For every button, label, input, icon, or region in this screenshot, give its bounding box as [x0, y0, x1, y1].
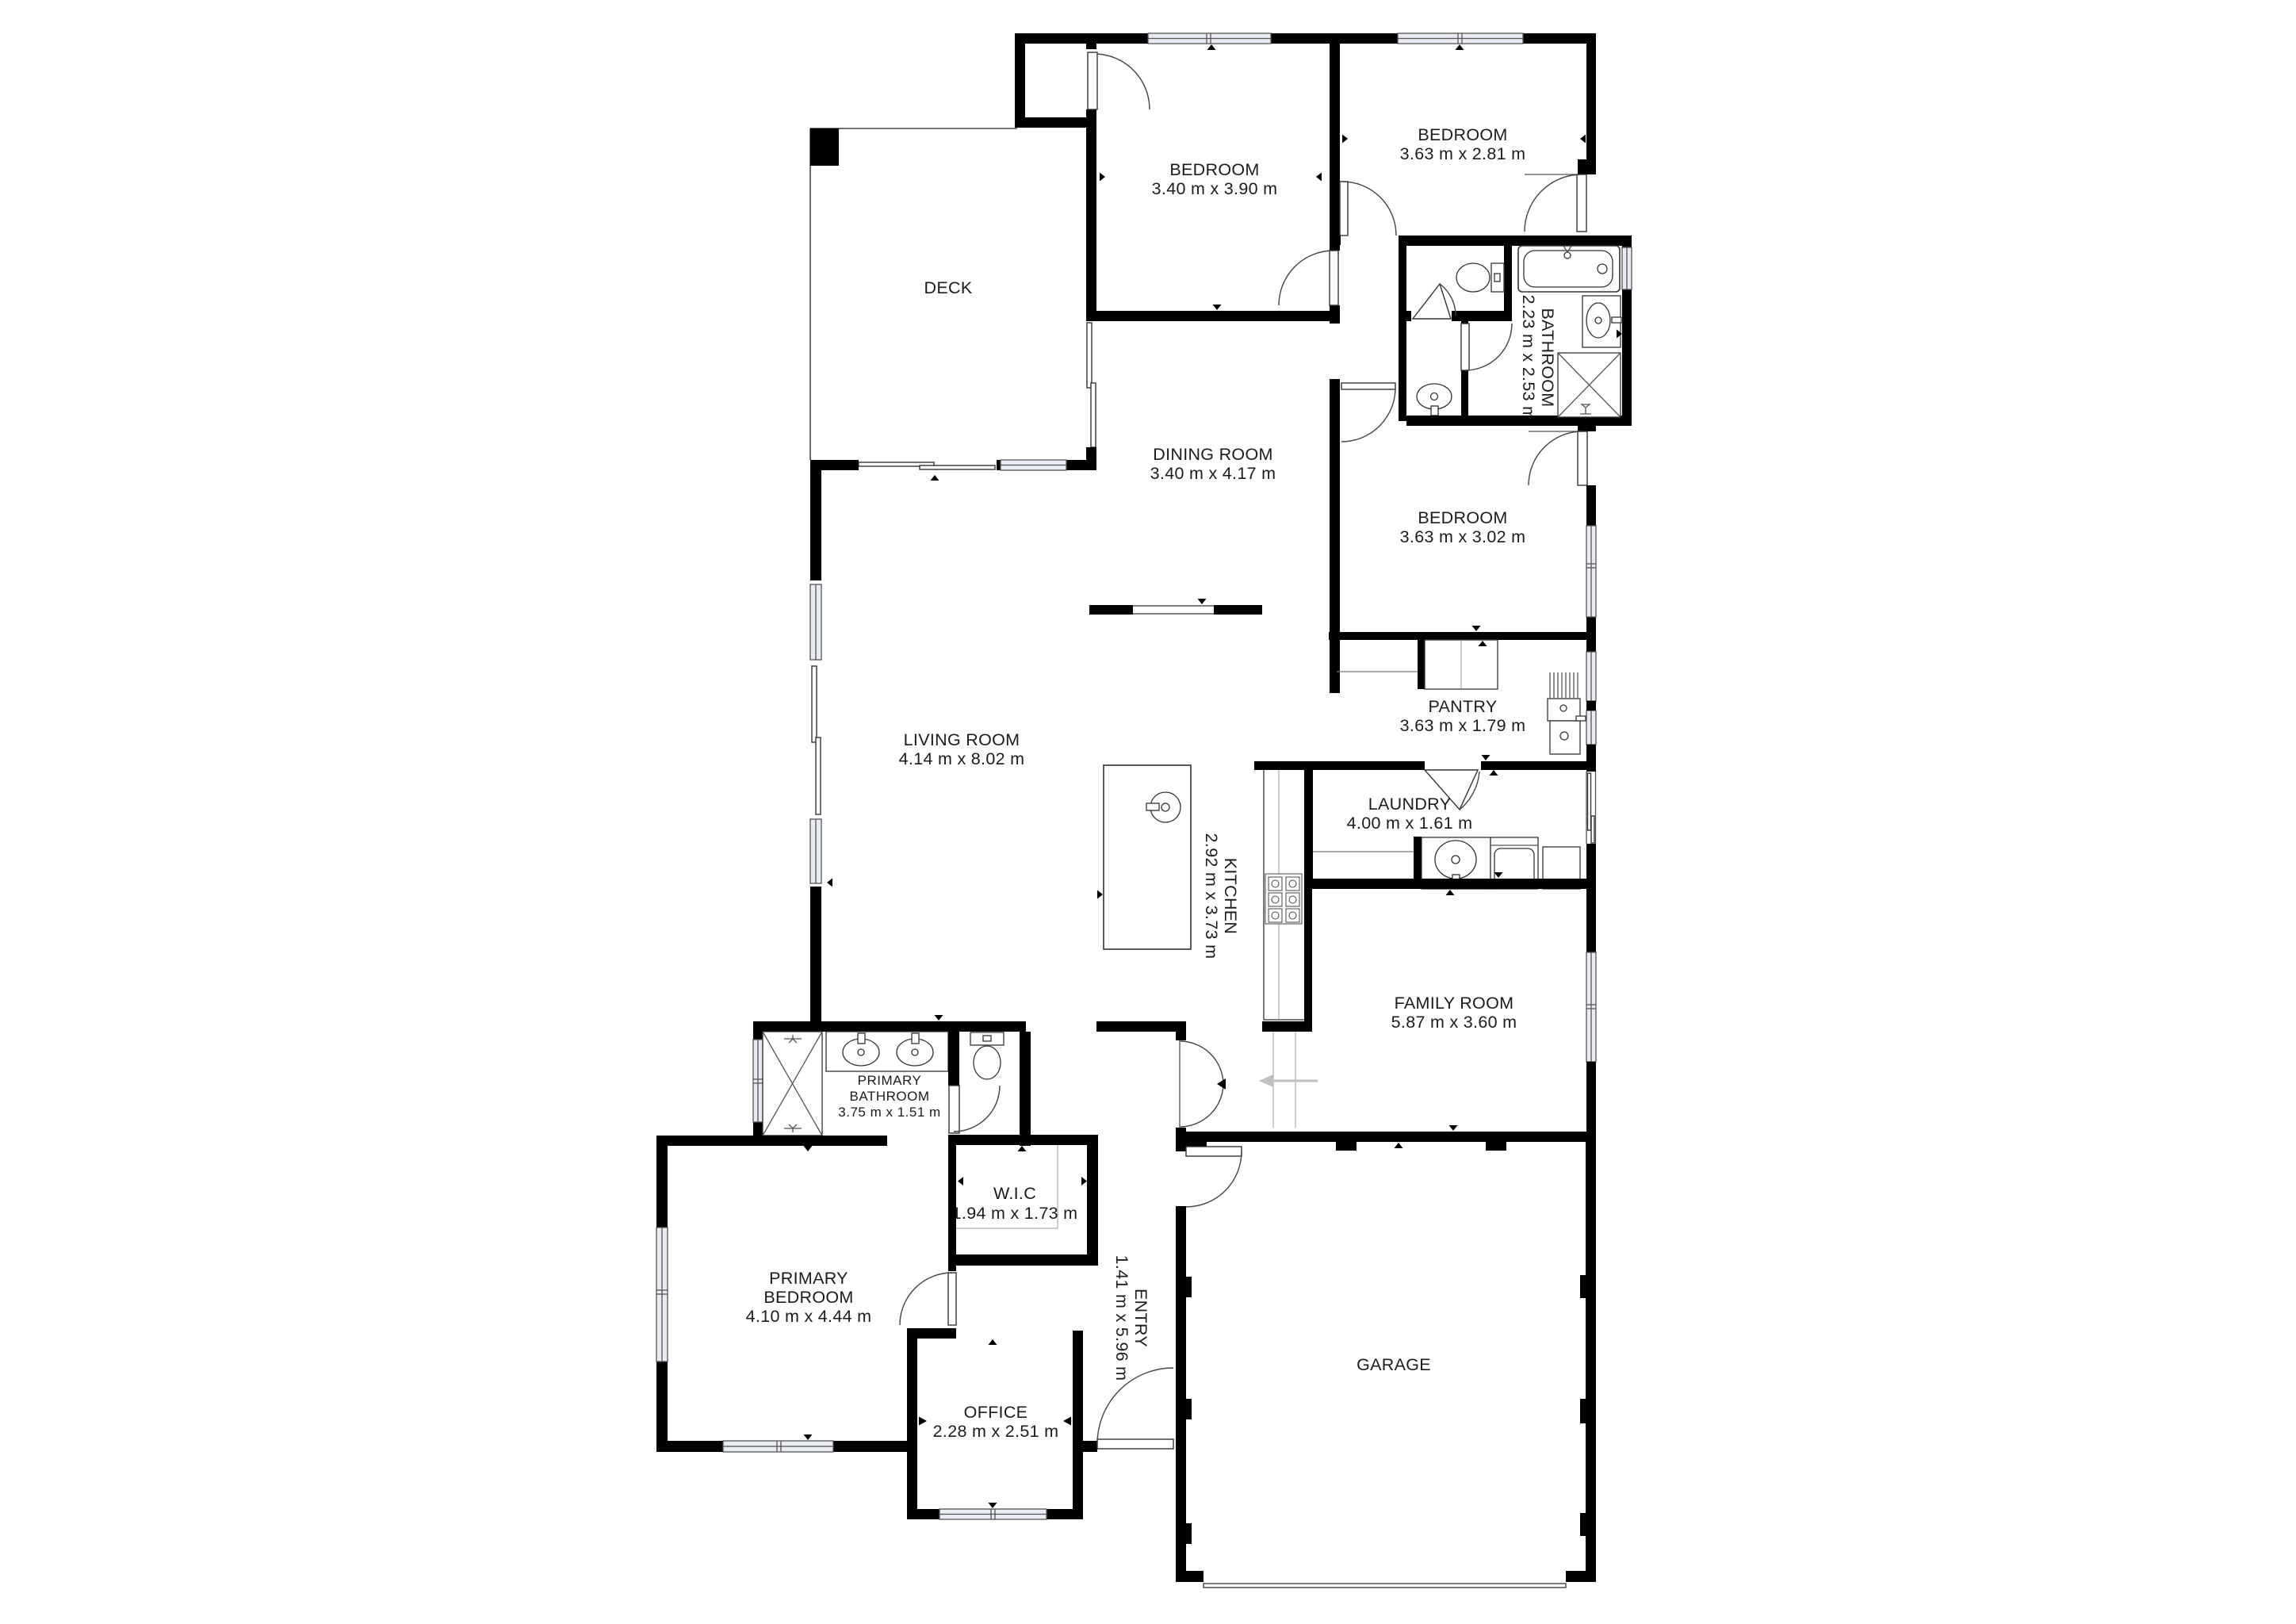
svg-text:1.41 m x 5.96 m: 1.41 m x 5.96 m — [1112, 1255, 1131, 1381]
svg-text:4.14 m x 8.02 m: 4.14 m x 8.02 m — [899, 749, 1025, 768]
svg-text:3.63 m x 2.81 m: 3.63 m x 2.81 m — [1400, 144, 1526, 163]
svg-text:3.63 m x 1.79 m: 3.63 m x 1.79 m — [1400, 716, 1526, 735]
svg-text:ENTRY: ENTRY — [1131, 1289, 1150, 1347]
svg-text:2.23 m x 2.53 m: 2.23 m x 2.53 m — [1519, 295, 1538, 421]
svg-text:GARAGE: GARAGE — [1357, 1355, 1431, 1374]
svg-text:LAUNDRY: LAUNDRY — [1368, 795, 1451, 814]
svg-text:KITCHEN: KITCHEN — [1221, 858, 1240, 934]
svg-text:BEDROOM: BEDROOM — [1418, 508, 1507, 527]
svg-text:OFFICE: OFFICE — [964, 1403, 1028, 1422]
svg-text:3.40 m x 3.90 m: 3.40 m x 3.90 m — [1152, 179, 1278, 198]
svg-text:1.94 m x 1.73 m: 1.94 m x 1.73 m — [952, 1204, 1078, 1223]
svg-text:PRIMARY: PRIMARY — [769, 1269, 848, 1288]
svg-text:3.75 m x 1.51 m: 3.75 m x 1.51 m — [838, 1105, 940, 1120]
svg-text:4.00 m x 1.61 m: 4.00 m x 1.61 m — [1347, 814, 1473, 833]
svg-text:BATHROOM: BATHROOM — [850, 1089, 930, 1104]
svg-text:4.10 m x 4.44 m: 4.10 m x 4.44 m — [746, 1307, 872, 1326]
svg-text:BEDROOM: BEDROOM — [1169, 160, 1259, 179]
svg-text:DINING ROOM: DINING ROOM — [1153, 445, 1272, 464]
svg-text:BATHROOM: BATHROOM — [1538, 308, 1557, 407]
svg-text:3.40 m x 4.17 m: 3.40 m x 4.17 m — [1150, 464, 1276, 483]
svg-text:2.92 m x 3.73 m: 2.92 m x 3.73 m — [1202, 833, 1221, 959]
svg-text:LIVING ROOM: LIVING ROOM — [904, 730, 1020, 749]
svg-text:PRIMARY: PRIMARY — [858, 1073, 922, 1088]
svg-text:BEDROOM: BEDROOM — [763, 1288, 853, 1307]
svg-text:5.87 m x 3.60 m: 5.87 m x 3.60 m — [1391, 1013, 1517, 1032]
svg-text:W.I.C: W.I.C — [993, 1184, 1036, 1203]
svg-text:DECK: DECK — [924, 278, 973, 297]
svg-text:PANTRY: PANTRY — [1428, 697, 1497, 716]
svg-text:3.63 m x 3.02 m: 3.63 m x 3.02 m — [1400, 527, 1526, 546]
svg-text:FAMILY ROOM: FAMILY ROOM — [1395, 994, 1514, 1013]
svg-text:BEDROOM: BEDROOM — [1418, 125, 1507, 144]
svg-text:2.28 m x 2.51 m: 2.28 m x 2.51 m — [933, 1422, 1059, 1441]
